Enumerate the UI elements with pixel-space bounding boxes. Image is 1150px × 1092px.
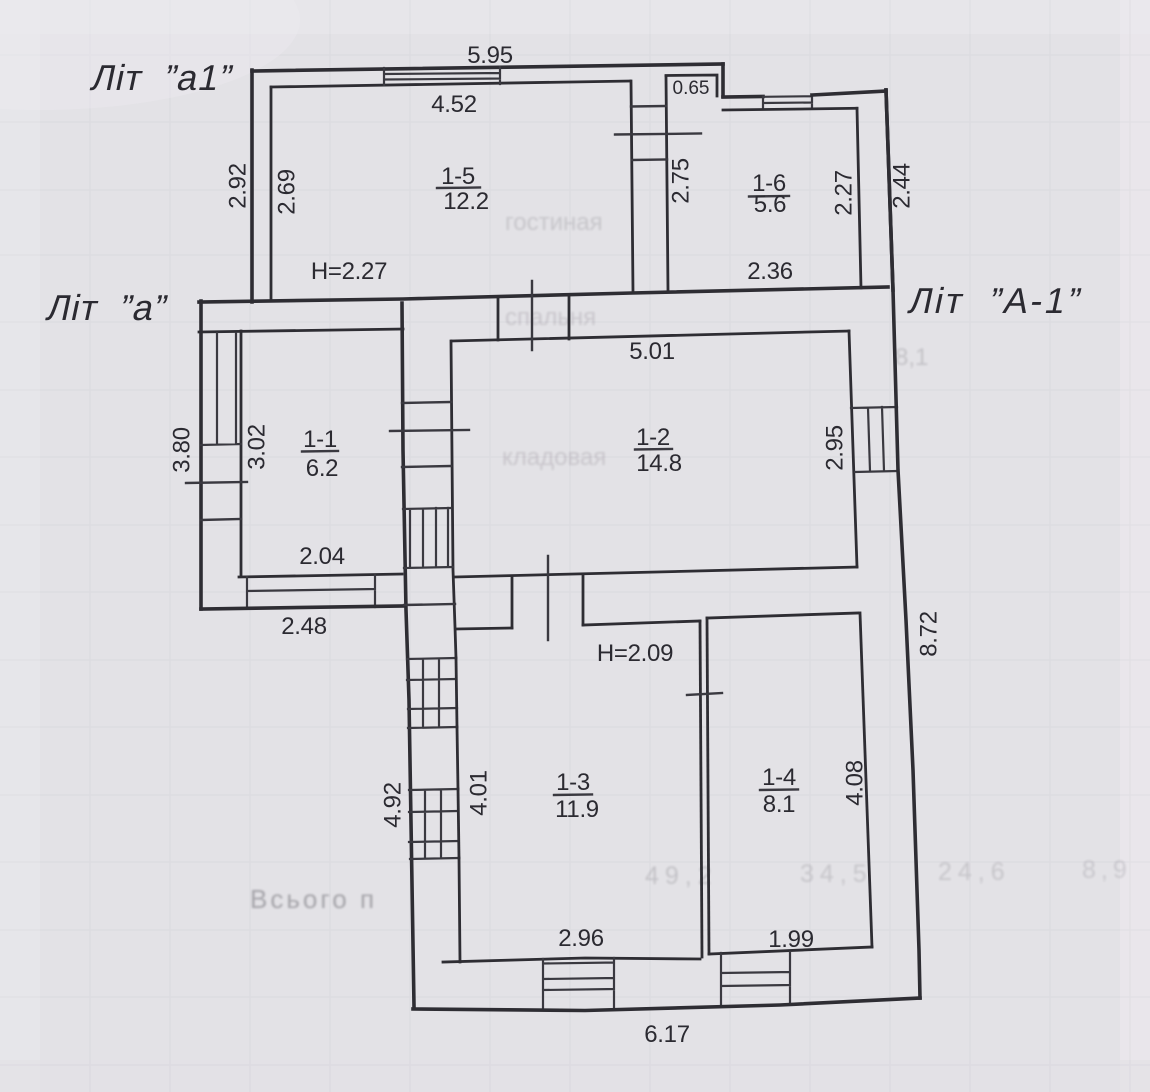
- svg-text:H=2.09: H=2.09: [597, 640, 673, 667]
- svg-text:спальня: спальня: [505, 304, 596, 331]
- svg-text:24,6: 24,6: [938, 858, 1011, 886]
- svg-text:8.72: 8.72: [916, 611, 943, 657]
- svg-text:4.92: 4.92: [380, 782, 407, 828]
- svg-text:2.44: 2.44: [889, 163, 916, 209]
- svg-text:гостиная: гостиная: [505, 209, 603, 236]
- svg-text:8.1: 8.1: [763, 791, 795, 818]
- svg-text:1-4: 1-4: [762, 764, 796, 791]
- svg-text:2.75: 2.75: [668, 158, 695, 204]
- svg-text:2.04: 2.04: [299, 543, 345, 570]
- svg-text:2.36: 2.36: [747, 258, 793, 285]
- svg-text:2.69: 2.69: [274, 169, 301, 215]
- svg-text:H=2.27: H=2.27: [311, 258, 387, 285]
- svg-text:кладовая: кладовая: [502, 444, 606, 471]
- svg-text:0.65: 0.65: [673, 78, 710, 99]
- svg-text:2.48: 2.48: [281, 613, 327, 640]
- svg-text:2.92: 2.92: [225, 163, 252, 209]
- svg-text:5.01: 5.01: [629, 338, 675, 365]
- svg-text:3.02: 3.02: [244, 424, 271, 470]
- svg-text:Всього п: Всього п: [250, 884, 377, 914]
- svg-text:5.95: 5.95: [467, 42, 513, 69]
- svg-text:2.27: 2.27: [831, 170, 858, 216]
- svg-text:6.17: 6.17: [644, 1021, 690, 1048]
- svg-text:Літ ”А-1”: Літ ”А-1”: [905, 280, 1087, 321]
- svg-text:1.99: 1.99: [768, 926, 814, 953]
- svg-text:3.80: 3.80: [169, 427, 196, 473]
- svg-text:1-3: 1-3: [556, 769, 590, 796]
- svg-text:1-2: 1-2: [636, 424, 670, 451]
- svg-text:12.2: 12.2: [443, 188, 489, 215]
- svg-text:11.9: 11.9: [555, 796, 599, 823]
- svg-text:1-1: 1-1: [303, 426, 337, 453]
- svg-text:49,2: 49,2: [645, 862, 718, 890]
- svg-text:4.01: 4.01: [466, 770, 493, 816]
- svg-text:14.8: 14.8: [636, 450, 682, 477]
- svg-text:4.08: 4.08: [842, 760, 869, 806]
- svg-text:8,9: 8,9: [1082, 856, 1132, 884]
- svg-text:2.96: 2.96: [558, 925, 604, 952]
- svg-text:Літ ”а”: Літ ”а”: [43, 287, 172, 328]
- svg-text:5.6: 5.6: [754, 191, 786, 218]
- svg-text:1-5: 1-5: [441, 163, 475, 190]
- svg-text:2.95: 2.95: [822, 425, 849, 471]
- svg-text:6.2: 6.2: [306, 455, 338, 482]
- svg-text:34,5: 34,5: [800, 860, 873, 888]
- svg-text:Літ ”а1”: Літ ”а1”: [88, 57, 238, 98]
- svg-text:8,1: 8,1: [895, 344, 928, 371]
- svg-text:4.52: 4.52: [431, 91, 477, 118]
